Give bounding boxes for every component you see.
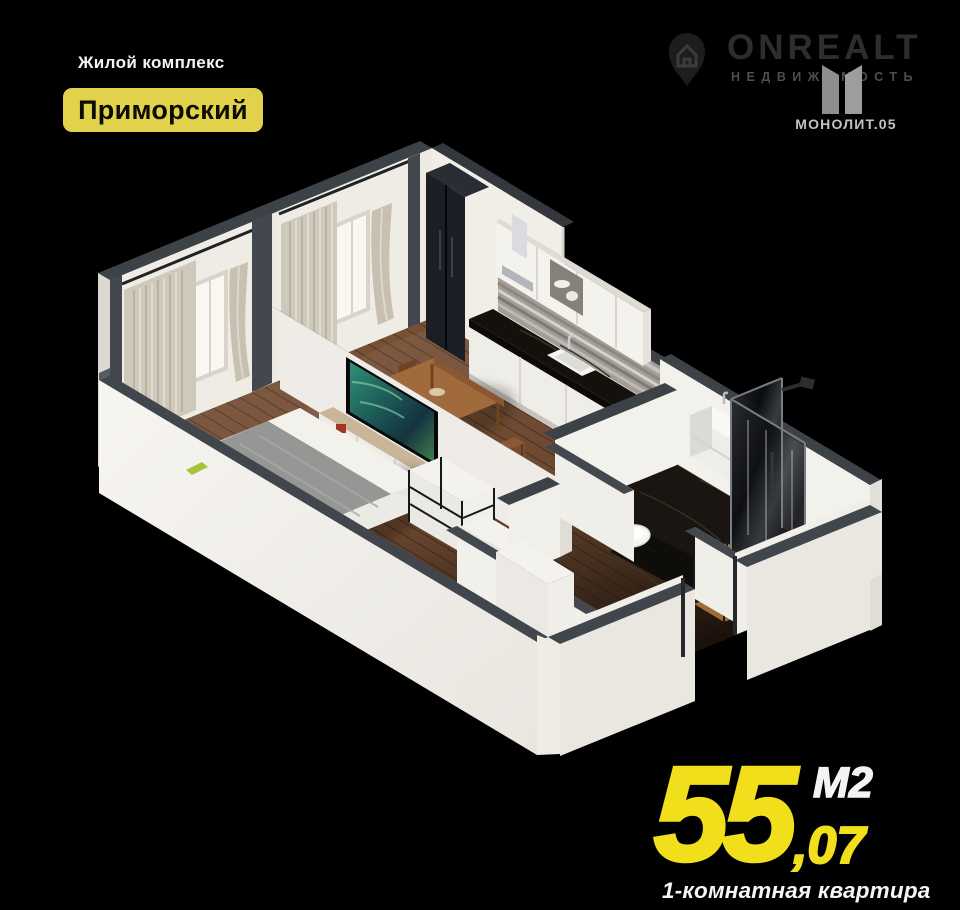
area-value: 55 [654, 748, 791, 882]
onrealt-pin-icon [660, 24, 714, 88]
shower-head [782, 376, 815, 390]
monolit-monogram-icon [819, 58, 865, 116]
window-1 [194, 272, 226, 381]
window-2 [335, 212, 368, 323]
monolit-logo-text: МОНОЛИТ.05 [786, 116, 906, 132]
area-unit: М2 [813, 762, 873, 805]
real-estate-poster: Жилой комплекс Приморский ONREALT НЕДВИЖ… [0, 0, 960, 910]
complex-name: Приморский [78, 95, 248, 126]
bowl [429, 388, 445, 396]
complex-name-badge: Приморский [63, 88, 263, 132]
apartment-type-caption: 1-комнатная квартира [662, 878, 930, 904]
area-fraction: ,07 [793, 820, 865, 872]
complex-label: Жилой комплекс [78, 53, 225, 73]
